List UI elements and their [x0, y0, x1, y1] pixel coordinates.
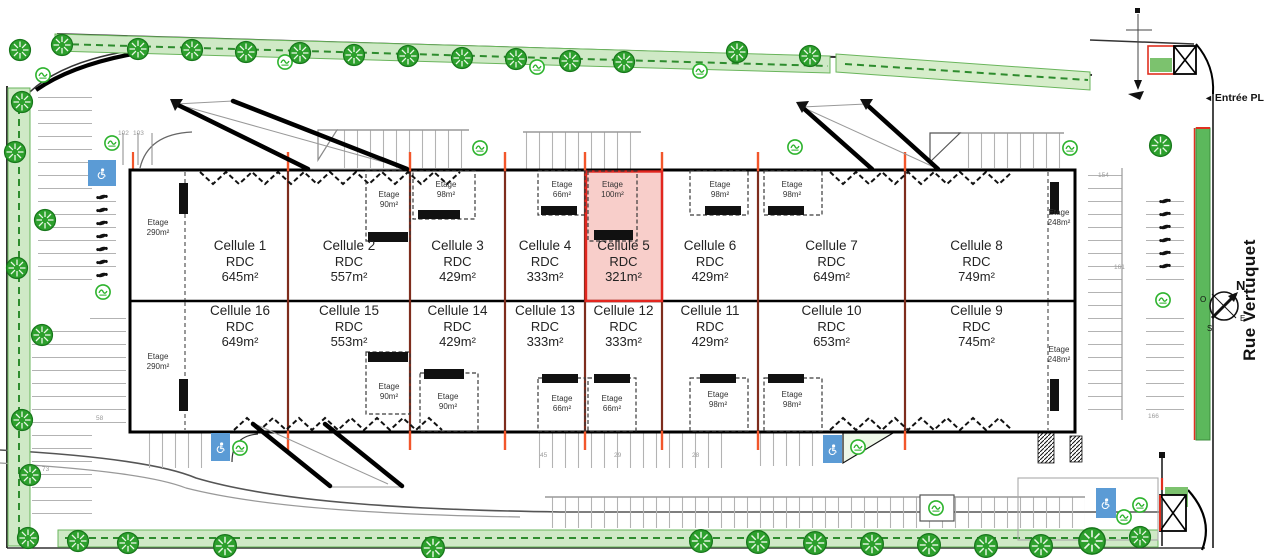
etage-label-cellule-2: Etage 90m² [368, 190, 410, 209]
tree-icon [452, 48, 473, 69]
etage-area: 248m² [1040, 218, 1078, 228]
shrub-icon [530, 60, 544, 74]
parking-number: 161 [1114, 264, 1125, 271]
tree-icon [52, 35, 73, 56]
cell-area: 649m² [185, 334, 295, 350]
tree-icon [12, 92, 33, 113]
etage-label-cellule-10: Etage 98m² [770, 390, 814, 409]
shrub-icon [105, 136, 119, 150]
etage-label-cellule-16: Etage 290m² [136, 352, 180, 371]
etage-word: Etage [540, 180, 584, 190]
etage-area: 98m² [770, 400, 814, 410]
etage-area: 90m² [426, 402, 470, 412]
etage-area: 98m² [424, 190, 468, 200]
tree-icon [344, 45, 365, 66]
parking-number: 166 [1148, 413, 1159, 420]
etage-label-cellule-12: Etage 66m² [590, 394, 634, 413]
etage-word: Etage [540, 394, 584, 404]
cell-label-cellule-11: Cellule 11 RDC 429m² [662, 303, 758, 350]
tree-icon [747, 531, 770, 554]
tree-icon [727, 42, 748, 63]
etage-word: Etage [426, 392, 470, 402]
etage-area: 90m² [368, 392, 410, 402]
shrub-icon [1133, 498, 1147, 512]
cell-area: 429m² [410, 334, 505, 350]
disabled-parking-icon [88, 160, 116, 186]
cell-floor: RDC [758, 319, 905, 335]
tree-icon [1130, 527, 1151, 548]
cell-name: Cellule 1 [185, 238, 295, 254]
shrub-icon [36, 68, 50, 82]
cell-label-cellule-5[interactable]: Cellule 5 RDC 321m² [585, 238, 662, 285]
shrub-icon [473, 141, 487, 155]
tree-icon [614, 52, 635, 73]
etage-word: Etage [770, 180, 814, 190]
cell-area: 749m² [905, 269, 1048, 285]
cell-name: Cellule 14 [410, 303, 505, 319]
cell-area: 653m² [758, 334, 905, 350]
shrub-icon [929, 501, 943, 515]
tree-icon [1030, 535, 1053, 558]
etage-word: Etage [698, 180, 742, 190]
etage-area: 66m² [540, 190, 584, 200]
etage-word: Etage [770, 390, 814, 400]
cell-area: 333m² [585, 334, 662, 350]
cell-floor: RDC [505, 254, 585, 270]
cell-label-cellule-7: Cellule 7 RDC 649m² [758, 238, 905, 285]
cell-name: Cellule 11 [662, 303, 758, 319]
disabled-parking-icon [211, 433, 230, 461]
cell-area: 429m² [662, 269, 758, 285]
cell-name: Cellule 5 [585, 238, 662, 254]
bike-rack-icon [1070, 436, 1082, 462]
etage-label-cellule-14: Etage 90m² [426, 392, 470, 411]
cell-floor: RDC [288, 319, 410, 335]
etage-word: Etage [368, 382, 410, 392]
etage-area: 98m² [770, 190, 814, 200]
cell-name: Cellule 2 [288, 238, 410, 254]
parking-number: 28 [692, 452, 699, 459]
etage-area: 66m² [540, 404, 584, 414]
cell-floor: RDC [585, 254, 662, 270]
etage-area: 290m² [136, 362, 180, 372]
shrub-icon [96, 285, 110, 299]
entrance-pl-text: Entrée PL [1215, 92, 1264, 104]
cell-label-cellule-1: Cellule 1 RDC 645m² [185, 238, 295, 285]
cell-label-cellule-6: Cellule 6 RDC 429m² [662, 238, 758, 285]
cell-floor: RDC [410, 319, 505, 335]
cell-area: 321m² [585, 269, 662, 285]
tree-icon [35, 210, 56, 231]
cell-area: 645m² [185, 269, 295, 285]
tree-icon [1150, 135, 1172, 157]
cell-name: Cellule 4 [505, 238, 585, 254]
tree-icon [5, 142, 26, 163]
tree-icon [7, 258, 28, 279]
etage-label-cellule-6: Etage 98m² [698, 180, 742, 199]
tree-icon [12, 410, 33, 431]
etage-word: Etage [136, 352, 180, 362]
cell-label-cellule-4: Cellule 4 RDC 333m² [505, 238, 585, 285]
shrub-icon [233, 441, 247, 455]
etage-label-cellule-1: Etage 290m² [136, 218, 180, 237]
cell-area: 745m² [905, 334, 1048, 350]
etage-word: Etage [368, 190, 410, 200]
bike-rack-icon [1038, 433, 1054, 463]
tree-icon [975, 535, 998, 558]
etage-area: 90m² [368, 200, 410, 210]
etage-label-cellule-8: Etage 248m² [1040, 208, 1078, 227]
cell-name: Cellule 13 [505, 303, 585, 319]
cell-floor: RDC [185, 254, 295, 270]
etage-word: Etage [136, 218, 180, 228]
tree-icon [690, 530, 713, 553]
cell-name: Cellule 7 [758, 238, 905, 254]
shrub-icon [1117, 510, 1131, 524]
cell-floor: RDC [288, 254, 410, 270]
tree-icon [20, 465, 41, 486]
tree-icon [128, 39, 149, 60]
cell-label-cellule-3: Cellule 3 RDC 429m² [410, 238, 505, 285]
tree-icon [422, 537, 445, 558]
parking-number: 154 [1098, 172, 1109, 179]
cell-label-cellule-14: Cellule 14 RDC 429m² [410, 303, 505, 350]
tree-icon [236, 42, 257, 63]
cell-area: 649m² [758, 269, 905, 285]
cell-name: Cellule 10 [758, 303, 905, 319]
cell-label-cellule-16: Cellule 16 RDC 649m² [185, 303, 295, 350]
cell-name: Cellule 8 [905, 238, 1048, 254]
cell-area: 429m² [410, 269, 505, 285]
left-arrow-icon: ◄ [1204, 93, 1213, 103]
tree-icon [918, 534, 941, 557]
site-plan: N S E O Cellule 1 RDC 645m² Cellule 2 RD… [0, 0, 1280, 558]
etage-word: Etage [1040, 208, 1078, 218]
tree-icon [506, 49, 527, 70]
cell-floor: RDC [185, 319, 295, 335]
etage-area: 248m² [1040, 355, 1078, 365]
tree-icon [1079, 528, 1105, 554]
tree-icon [10, 40, 31, 61]
cell-label-cellule-12: Cellule 12 RDC 333m² [585, 303, 662, 350]
cell-floor: RDC [905, 254, 1048, 270]
etage-area: 98m² [696, 400, 740, 410]
cell-area: 553m² [288, 334, 410, 350]
cell-label-cellule-9: Cellule 9 RDC 745m² [905, 303, 1048, 350]
cell-area: 429m² [662, 334, 758, 350]
cell-floor: RDC [585, 319, 662, 335]
cell-name: Cellule 6 [662, 238, 758, 254]
cell-label-cellule-10: Cellule 10 RDC 653m² [758, 303, 905, 350]
etage-label-cellule-5: Etage 100m² [589, 180, 636, 199]
etage-word: Etage [696, 390, 740, 400]
tree-icon [118, 533, 139, 554]
compass-south-label: S [1207, 324, 1212, 333]
parking-number: 29 [614, 452, 621, 459]
entrance-barrier-icon [1160, 495, 1186, 531]
entrance-pl-label: ◄Entrée PL [1204, 92, 1264, 104]
tree-icon [861, 533, 884, 556]
entrance-barrier-icon [1174, 46, 1196, 74]
cell-floor: RDC [905, 319, 1048, 335]
cell-area: 557m² [288, 269, 410, 285]
cell-name: Cellule 9 [905, 303, 1048, 319]
etage-label-cellule-13: Etage 66m² [540, 394, 584, 413]
cell-floor: RDC [410, 254, 505, 270]
cell-floor: RDC [505, 319, 585, 335]
etage-label-cellule-4: Etage 66m² [540, 180, 584, 199]
etage-label-cellule-9: Etage 248m² [1040, 345, 1078, 364]
parking-number: 45 [540, 452, 547, 459]
cell-name: Cellule 3 [410, 238, 505, 254]
cell-floor: RDC [662, 319, 758, 335]
parking-number: 73 [42, 466, 49, 473]
etage-area: 290m² [136, 228, 180, 238]
etage-word: Etage [590, 394, 634, 404]
tree-icon [800, 46, 821, 67]
etage-word: Etage [589, 180, 636, 190]
cell-label-cellule-15: Cellule 15 RDC 553m² [288, 303, 410, 350]
tree-icon [398, 46, 419, 67]
disabled-parking-icon [1096, 488, 1116, 518]
cell-label-cellule-8: Cellule 8 RDC 749m² [905, 238, 1048, 285]
tree-icon [290, 43, 311, 64]
parking-number: 103 [133, 130, 144, 137]
shrub-icon [693, 64, 707, 78]
cell-name: Cellule 15 [288, 303, 410, 319]
etage-word: Etage [424, 180, 468, 190]
cell-floor: RDC [758, 254, 905, 270]
compass-west-label: O [1200, 295, 1206, 304]
etage-area: 66m² [590, 404, 634, 414]
parking-number: 102 [118, 130, 129, 137]
cell-area: 333m² [505, 269, 585, 285]
shrub-icon [1063, 141, 1077, 155]
tree-icon [18, 528, 39, 549]
street-name-label: Rue Vertuquet [1240, 220, 1262, 380]
cell-name: Cellule 16 [185, 303, 295, 319]
tree-icon [32, 325, 53, 346]
tree-icon [68, 531, 89, 552]
cell-label-cellule-13: Cellule 13 RDC 333m² [505, 303, 585, 350]
etage-area: 100m² [589, 190, 636, 200]
shrub-icon [851, 440, 865, 454]
tree-icon [804, 532, 827, 555]
etage-label-cellule-15: Etage 90m² [368, 382, 410, 401]
shrub-icon [788, 140, 802, 154]
cell-name: Cellule 12 [585, 303, 662, 319]
cell-label-cellule-2: Cellule 2 RDC 557m² [288, 238, 410, 285]
etage-word: Etage [1040, 345, 1078, 355]
shrub-icon [1156, 293, 1170, 307]
cell-floor: RDC [662, 254, 758, 270]
etage-area: 98m² [698, 190, 742, 200]
disabled-parking-icon [823, 435, 842, 463]
cell-area: 333m² [505, 334, 585, 350]
etage-label-cellule-7: Etage 98m² [770, 180, 814, 199]
tree-icon [182, 40, 203, 61]
etage-label-cellule-11: Etage 98m² [696, 390, 740, 409]
tree-icon [214, 535, 237, 558]
parking-number: 58 [96, 415, 103, 422]
etage-label-cellule-3: Etage 98m² [424, 180, 468, 199]
tree-icon [560, 51, 581, 72]
